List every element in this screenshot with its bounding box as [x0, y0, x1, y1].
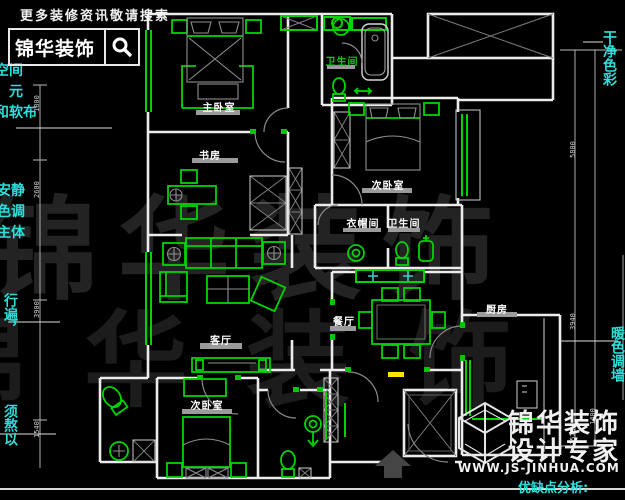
- room-label-bedroom: 次卧室: [372, 177, 405, 192]
- dimension-label: 5800: [569, 141, 577, 158]
- dimension-label: 2600: [33, 181, 41, 198]
- dimension-label: 1540: [33, 421, 41, 438]
- bed: [366, 104, 420, 170]
- annotation-right: 干净色彩: [601, 30, 616, 86]
- chair: [359, 312, 372, 328]
- room-label-bathroom: 卫生间: [388, 215, 421, 230]
- furniture-gray: [113, 18, 420, 478]
- annotation-right: 暖色调墙: [609, 326, 624, 382]
- toilet: [333, 78, 345, 94]
- basin: [348, 245, 364, 261]
- annotation-left: 须熬以: [2, 404, 17, 446]
- drain-symbols: [368, 271, 413, 281]
- nightstand: [424, 103, 439, 115]
- yellow-marker: [388, 372, 404, 377]
- dimension-label: 3900: [33, 301, 41, 318]
- basin: [419, 241, 433, 261]
- basin: [305, 416, 321, 432]
- cube-logo-icon: [450, 400, 520, 468]
- floorplan-page: 锦华装饰 锦华装饰: [0, 0, 625, 500]
- armchair: [160, 272, 187, 302]
- nightstand: [167, 463, 182, 477]
- room-label-cloakroom: 衣帽间: [347, 215, 380, 230]
- room-label-master: 主卧室: [203, 99, 236, 114]
- toilet: [396, 242, 408, 258]
- planter-box: [356, 270, 424, 282]
- lounge-chair: [251, 277, 285, 311]
- search-icon: [104, 30, 138, 64]
- chair: [382, 288, 398, 301]
- toilet: [281, 451, 295, 469]
- master-bed: [187, 18, 243, 82]
- brand-name: 锦华装饰: [10, 34, 104, 61]
- search-banner[interactable]: 锦华装饰: [8, 28, 140, 66]
- nightstand: [172, 20, 187, 33]
- room-label-dining: 餐厅: [333, 313, 355, 328]
- analysis-caption: 优缺点分析:: [518, 477, 588, 496]
- room-label-living: 客厅: [210, 332, 232, 347]
- chair: [432, 312, 445, 328]
- nightstand: [231, 463, 246, 477]
- dining-table: [372, 300, 430, 344]
- chair: [181, 206, 197, 219]
- room-label-study: 书房: [199, 147, 221, 162]
- annotation-left: 行遍，: [2, 293, 17, 335]
- room-label-kitchen: 厨房: [486, 301, 508, 316]
- chair: [181, 170, 197, 183]
- chair: [382, 345, 398, 358]
- dresser: [198, 84, 238, 99]
- dimension-label: 1800: [33, 95, 41, 112]
- search-hint-text: 更多装修资讯敬请搜索: [20, 5, 170, 24]
- faucet-symbol: [355, 88, 371, 94]
- nightstand: [246, 20, 261, 33]
- dimension-label: 3940: [569, 313, 577, 330]
- toilet: [99, 383, 128, 415]
- chair: [404, 288, 420, 301]
- annotation-left: 安静色调主体: [0, 160, 25, 265]
- sofa: [186, 238, 262, 268]
- chair: [404, 345, 420, 358]
- room-label-bathroom: 卫生间: [326, 53, 359, 68]
- room-label-bedroom: 次卧室: [191, 397, 224, 412]
